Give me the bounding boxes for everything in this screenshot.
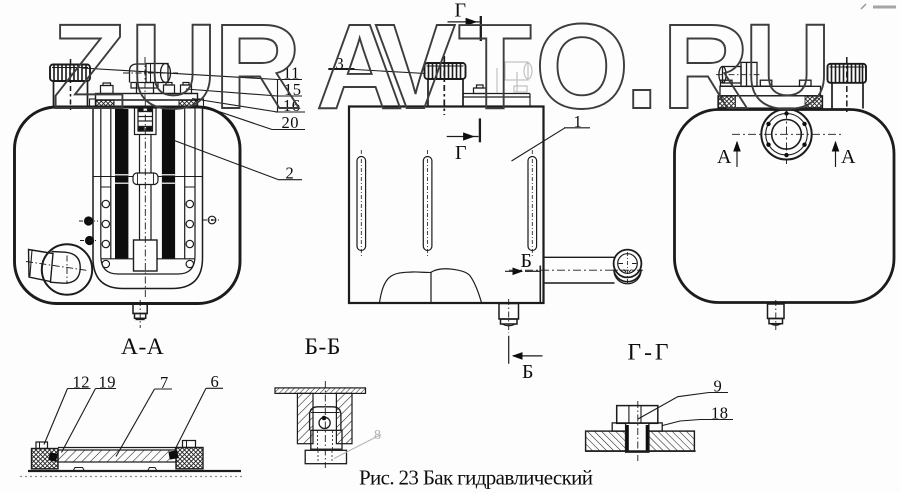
svg-text:Z: Z [52, 0, 126, 134]
svg-text:.: . [625, 0, 659, 134]
svg-text:Г-Г: Г-Г [628, 339, 672, 365]
svg-text:Рис. 23 Бак гидравлический: Рис. 23 Бак гидравлический [359, 466, 593, 490]
svg-text:Б-Б: Б-Б [305, 334, 341, 360]
svg-text:А: А [717, 146, 732, 168]
svg-text:А-А: А-А [121, 334, 164, 360]
svg-text:O: O [535, 0, 629, 134]
svg-text:А: А [841, 146, 856, 168]
svg-text:V: V [375, 0, 456, 134]
svg-text:6: 6 [211, 372, 220, 391]
svg-text:18: 18 [711, 404, 729, 423]
svg-text:Г: Г [455, 142, 467, 164]
svg-text:9: 9 [714, 376, 723, 395]
svg-text:19: 19 [99, 372, 117, 391]
svg-text:R: R [214, 0, 301, 134]
svg-text:U: U [744, 0, 831, 134]
svg-text:7: 7 [160, 373, 169, 392]
svg-text:12: 12 [73, 372, 91, 391]
svg-text:Б: Б [522, 361, 534, 383]
svg-text:Б: Б [521, 250, 533, 272]
svg-text:R: R [662, 0, 749, 134]
svg-text:2: 2 [286, 163, 295, 182]
svg-text:U: U [130, 0, 217, 134]
svg-text:8: 8 [374, 428, 382, 443]
svg-text:T: T [458, 0, 532, 134]
